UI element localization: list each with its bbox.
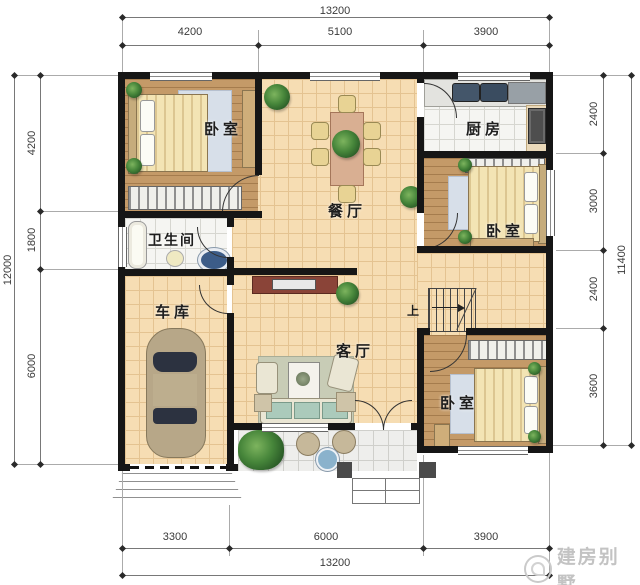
dim-tick	[420, 42, 427, 49]
window	[262, 423, 328, 432]
dim-left-seg-0: 4200	[26, 129, 38, 157]
window	[118, 227, 127, 267]
side-table	[336, 392, 356, 412]
watermark: 建房别墅	[524, 542, 640, 585]
car-roof	[153, 374, 197, 406]
bathroom-label: 卫生间	[148, 230, 196, 250]
side-table	[254, 394, 272, 412]
plant-icon	[126, 158, 142, 174]
plant-icon	[264, 84, 290, 110]
dim-ext	[423, 30, 424, 72]
porch-column	[337, 462, 352, 478]
living-label: 客厅	[336, 340, 374, 361]
bedroom-e-pillow	[524, 204, 538, 234]
dim-bottom-seg-1: 6000	[312, 531, 340, 543]
wall	[417, 151, 553, 158]
tv-wall	[234, 268, 357, 275]
wall	[255, 72, 262, 175]
dim-tick	[600, 72, 607, 79]
dim-bottom-seg-2: 3900	[472, 531, 500, 543]
dining-chair	[338, 95, 356, 113]
dim-ext	[40, 269, 118, 270]
armchair	[256, 362, 278, 394]
stairs-up-label: 上	[407, 302, 419, 319]
plant-icon	[458, 230, 472, 244]
porch-column	[419, 462, 436, 478]
kitchen-drainboard	[508, 82, 546, 104]
dim-right-seg-3: 3600	[588, 372, 600, 400]
wall	[234, 423, 262, 430]
car-windshield	[153, 352, 197, 372]
terrace-table	[316, 448, 339, 471]
bedroom-nw-dresser	[242, 90, 256, 168]
wall	[328, 423, 355, 430]
wall	[417, 72, 424, 83]
sofa-cushion	[294, 402, 320, 419]
dim-tick	[255, 42, 262, 49]
staircase	[428, 288, 476, 332]
dim-tick	[37, 266, 44, 273]
watermark-logo-icon	[524, 555, 552, 583]
dining-chair	[311, 148, 329, 166]
window	[546, 170, 555, 236]
kitchen-sink	[480, 83, 508, 102]
porch-step-line	[385, 479, 386, 503]
dim-top-seg-0: 4200	[176, 26, 204, 38]
dim-top-seg-2: 3900	[472, 26, 500, 38]
window	[458, 446, 528, 455]
dining-label: 餐厅	[328, 200, 366, 221]
bedroom-e-pillow	[524, 172, 538, 202]
plant-icon	[528, 362, 541, 375]
wall	[417, 117, 424, 213]
terrace-chair	[296, 432, 320, 456]
coffee-table-decor	[296, 372, 310, 386]
dim-tick	[600, 442, 607, 449]
watermark-text: 建房别墅	[557, 542, 640, 585]
tv	[272, 279, 316, 290]
dim-ext	[14, 75, 118, 76]
bedroom-nw-pillow	[140, 100, 155, 132]
dim-tick	[600, 325, 607, 332]
dim-left-seg-2: 6000	[26, 352, 38, 380]
terrace-bush-icon	[238, 430, 284, 470]
dim-ext	[556, 250, 605, 251]
wall	[466, 328, 553, 335]
dim-tick	[628, 72, 635, 79]
dim-right-seg-2: 2400	[588, 275, 600, 303]
dim-right-seg-0: 2400	[588, 100, 600, 128]
dim-tick	[11, 461, 18, 468]
dim-line-top-overall	[122, 17, 549, 18]
bedroom-e-label: 卧室	[486, 220, 524, 241]
window	[150, 72, 212, 81]
dim-ext	[553, 445, 634, 446]
wall	[118, 211, 262, 218]
dining-chair	[311, 122, 329, 140]
floor-plan: 卧室 厨房 餐厅 卧室 卫生间 车库 客厅 卧室 上	[0, 0, 640, 585]
garage-label: 车库	[155, 301, 193, 322]
dim-ext	[258, 30, 259, 72]
dim-tick	[420, 545, 427, 552]
car-rear-window	[153, 408, 197, 424]
dim-line-right-overall	[631, 75, 632, 445]
dim-tick	[600, 150, 607, 157]
dim-ext	[14, 464, 118, 465]
bedroom-se-label: 卧室	[440, 392, 478, 413]
plant-icon	[126, 82, 142, 98]
dim-tick	[119, 572, 126, 579]
dim-bottom-overall: 13200	[318, 557, 353, 569]
bedroom-nw-label: 卧室	[204, 118, 242, 139]
dim-tick	[119, 14, 126, 21]
dim-ext	[40, 211, 118, 212]
porch-step-line	[353, 490, 419, 491]
dim-ext	[556, 153, 605, 154]
kitchen-sink	[452, 83, 480, 102]
bathroom-sink	[166, 250, 184, 267]
dining-chair	[363, 148, 381, 166]
dim-tick	[11, 72, 18, 79]
stair-arrow-line	[432, 307, 458, 308]
dim-left-seg-1: 1800	[26, 226, 38, 254]
dim-top-seg-1: 5100	[326, 26, 354, 38]
wall	[417, 246, 553, 253]
wall	[417, 335, 424, 453]
dim-top-overall: 13200	[318, 5, 353, 17]
garage-door-dashed	[130, 466, 226, 469]
dim-ext	[122, 471, 123, 578]
dim-right-overall: 11400	[616, 243, 628, 277]
dim-tick	[119, 42, 126, 49]
wall	[227, 313, 234, 471]
dim-tick	[546, 42, 553, 49]
dim-tick	[119, 545, 126, 552]
dim-ext	[553, 75, 634, 76]
wall	[118, 464, 130, 471]
dining-chair	[363, 122, 381, 140]
window	[310, 72, 380, 81]
dim-tick	[628, 442, 635, 449]
dim-line-bottom-overall	[122, 575, 549, 576]
plant-icon	[528, 430, 541, 443]
wall	[118, 269, 227, 276]
dim-line-top-segments	[122, 45, 549, 46]
dim-tick	[37, 208, 44, 215]
window	[458, 72, 530, 81]
dim-ext	[556, 328, 605, 329]
bathtub	[128, 221, 147, 269]
kitchen-stove	[528, 108, 546, 144]
dim-left-overall: 12000	[2, 253, 14, 288]
wall	[411, 423, 417, 430]
dim-line-bottom-segments	[122, 548, 549, 549]
dim-tick	[600, 247, 607, 254]
dim-tick	[37, 72, 44, 79]
kitchen-label: 厨房	[466, 118, 504, 139]
dim-tick	[546, 14, 553, 21]
dim-bottom-seg-0: 3300	[161, 531, 189, 543]
bedroom-nw-pillow	[140, 134, 155, 166]
plant-icon	[336, 282, 359, 305]
dim-tick	[226, 545, 233, 552]
plant-icon	[458, 158, 472, 172]
dim-right-seg-1: 3000	[588, 187, 600, 215]
wall	[227, 257, 234, 285]
table-plant-icon	[332, 130, 360, 158]
dim-line-right-segments	[603, 75, 604, 445]
bedroom-se-wardrobe	[468, 340, 550, 360]
driveway-ramp	[110, 473, 244, 505]
dim-line-left-overall	[14, 75, 15, 464]
wall	[417, 328, 430, 335]
dim-tick	[37, 461, 44, 468]
porch-steps	[352, 478, 420, 504]
wall	[546, 72, 553, 453]
bedroom-se-pillow	[524, 376, 538, 404]
